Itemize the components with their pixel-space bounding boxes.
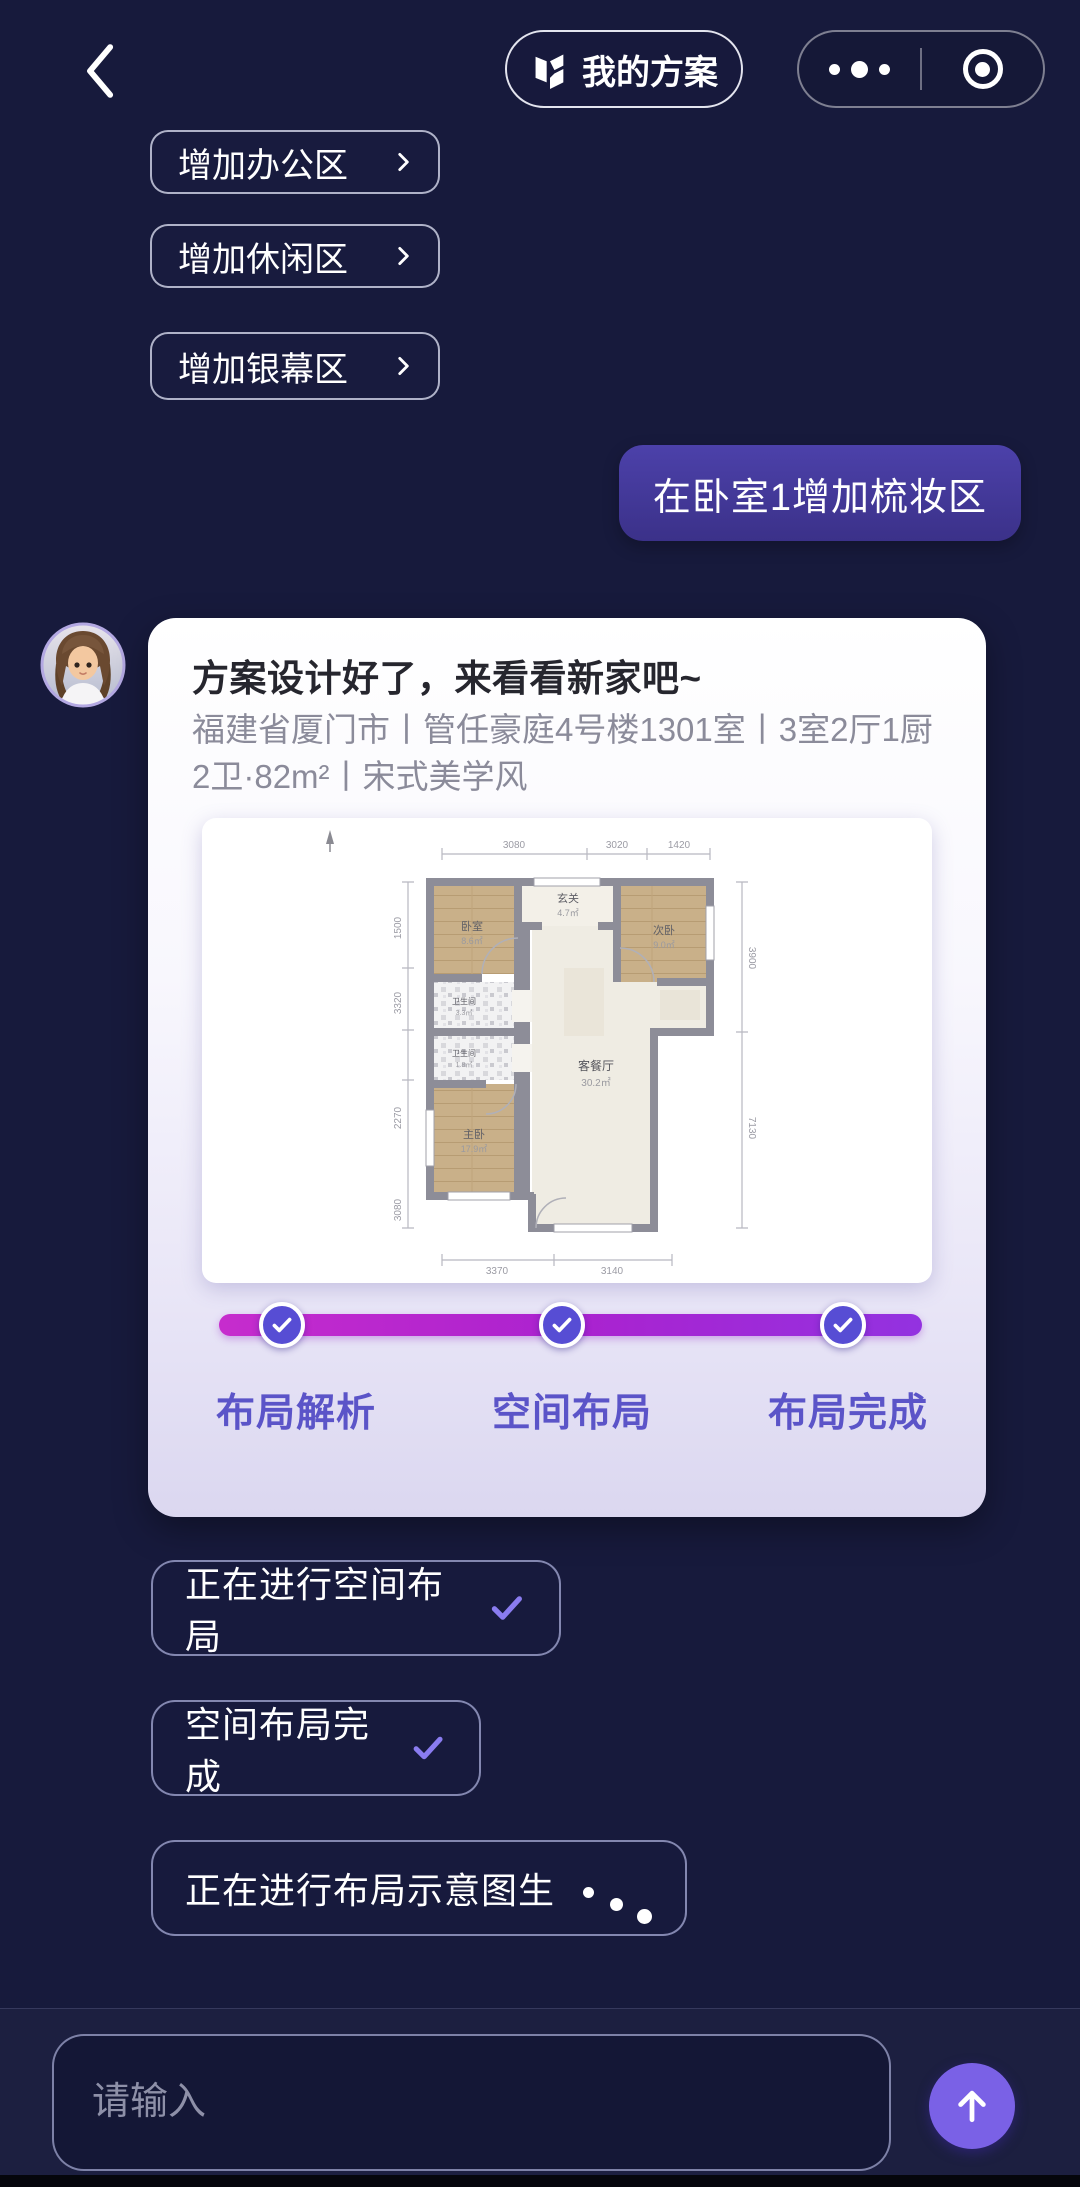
svg-text:主卧: 主卧 [463, 1128, 485, 1141]
check-icon [549, 1312, 575, 1338]
status-chip-layout-running: 正在进行空间布局 [151, 1560, 561, 1656]
suggestion-add-screen-area[interactable]: 增加银幕区 [150, 332, 440, 400]
svg-text:3140: 3140 [601, 1266, 624, 1277]
arrow-up-icon [950, 2084, 994, 2128]
svg-text:3900: 3900 [746, 947, 757, 970]
suggestion-add-leisure-area[interactable]: 增加休闲区 [150, 224, 440, 288]
svg-text:次卧: 次卧 [653, 923, 675, 937]
svg-text:1500: 1500 [393, 916, 404, 939]
svg-text:4.7㎡: 4.7㎡ [557, 908, 579, 918]
svg-text:9.0㎡: 9.0㎡ [653, 940, 675, 950]
composer-bar [0, 2008, 1080, 2187]
exit-circle-button[interactable] [922, 32, 1043, 106]
suggestion-label: 增加银幕区 [178, 342, 348, 391]
more-options-button[interactable] [799, 32, 920, 106]
my-plans-label: 我的方案 [582, 45, 718, 94]
progress-steps: 布局解析 空间布局 布局完成 [216, 1382, 928, 1438]
step-label-layout: 空间布局 [492, 1382, 652, 1438]
floorplan-panel[interactable]: 3080 3020 1420 1500 3320 2270 3080 3900 … [202, 818, 932, 1283]
chevron-right-icon [390, 149, 416, 175]
status-label: 空间布局完成 [185, 1696, 387, 1800]
status-chip-layout-complete: 空间布局完成 [151, 1700, 481, 1796]
step-label-done: 布局完成 [768, 1382, 928, 1438]
status-label: 正在进行空间布局 [185, 1556, 465, 1660]
svg-text:7130: 7130 [746, 1117, 757, 1140]
send-button[interactable] [929, 2063, 1015, 2149]
compass-icon [326, 830, 334, 852]
status-label: 正在进行布局示意图生 [185, 1862, 555, 1914]
miniprogram-capsule [797, 30, 1045, 108]
step-label-parse: 布局解析 [216, 1382, 376, 1438]
check-icon [269, 1312, 295, 1338]
home-indicator-strip [0, 2175, 1080, 2187]
svg-text:1.8㎡: 1.8㎡ [456, 1061, 473, 1069]
svg-text:3.3㎡: 3.3㎡ [456, 1009, 473, 1017]
suggestion-add-office-area[interactable]: 增加办公区 [150, 130, 440, 194]
svg-text:30.2㎡: 30.2㎡ [581, 1077, 610, 1089]
back-button[interactable] [66, 36, 136, 106]
floorplan-drawing: 3080 3020 1420 1500 3320 2270 3080 3900 … [202, 818, 932, 1283]
loading-dots-icon [583, 1881, 652, 1896]
card-title: 方案设计好了，来看看新家吧~ [192, 648, 702, 702]
svg-text:3020: 3020 [606, 840, 629, 851]
card-subtitle: 福建省厦门市丨管任豪庭4号楼1301室丨3室2厅1厨2卫·82m²丨宋式美学风 [192, 706, 948, 800]
design-result-card: 方案设计好了，来看看新家吧~ 福建省厦门市丨管任豪庭4号楼1301室丨3室2厅1… [148, 618, 986, 1517]
message-input[interactable] [52, 2034, 891, 2171]
check-icon [487, 1587, 527, 1629]
svg-text:卫生间: 卫生间 [452, 996, 476, 1006]
progress-check-1 [259, 1302, 305, 1348]
svg-text:3320: 3320 [393, 991, 404, 1014]
suggestion-label: 增加休闲区 [178, 232, 348, 281]
assistant-avatar [40, 622, 126, 708]
app-screen: 我的方案 增加办公区 增加休闲区 增加银幕区 在卧室1增加梳妆区 [0, 0, 1080, 2187]
progress-check-3 [820, 1302, 866, 1348]
chevron-right-icon [390, 353, 416, 379]
chevron-left-icon [79, 41, 123, 101]
user-message-text: 在卧室1增加梳妆区 [653, 466, 987, 521]
svg-text:1420: 1420 [668, 840, 691, 851]
record-circle-icon [963, 49, 1003, 89]
svg-text:卫生间: 卫生间 [452, 1048, 476, 1058]
svg-text:3080: 3080 [503, 840, 526, 851]
chevron-right-icon [390, 243, 416, 269]
more-dots-icon [829, 61, 890, 78]
progress-check-2 [539, 1302, 585, 1348]
svg-text:2270: 2270 [393, 1106, 404, 1129]
svg-text:玄关: 玄关 [557, 891, 579, 905]
avatar-girl-illustration [40, 622, 126, 708]
svg-text:17.9㎡: 17.9㎡ [461, 1144, 488, 1154]
check-icon [830, 1312, 856, 1338]
floorplan-icon [530, 49, 570, 89]
my-plans-button[interactable]: 我的方案 [505, 30, 743, 108]
svg-text:3080: 3080 [393, 1198, 404, 1221]
svg-text:3370: 3370 [486, 1266, 509, 1277]
check-icon [409, 1727, 447, 1769]
svg-text:8.6㎡: 8.6㎡ [461, 936, 483, 946]
suggestion-label: 增加办公区 [178, 138, 348, 187]
svg-text:卧室: 卧室 [461, 919, 483, 933]
user-message-bubble: 在卧室1增加梳妆区 [619, 445, 1021, 541]
status-chip-diagram-generating: 正在进行布局示意图生 [151, 1840, 687, 1936]
svg-text:客餐厅: 客餐厅 [578, 1058, 614, 1073]
